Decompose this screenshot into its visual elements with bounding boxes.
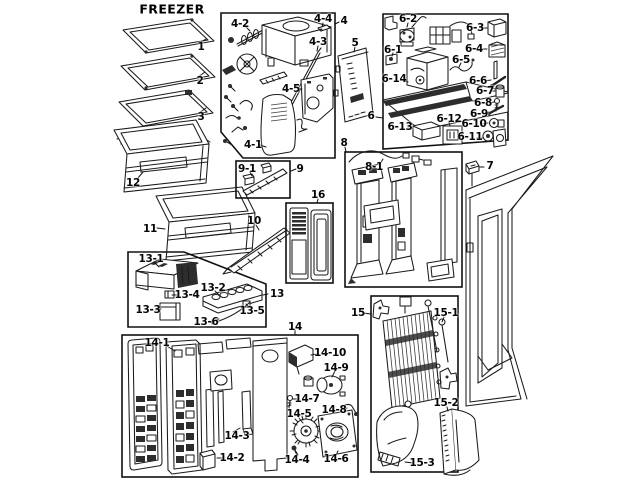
part-label-4-1: 4-1 [244, 139, 262, 151]
part-label-6-11: 6-11 [457, 131, 482, 143]
part-label-15-3: 15-3 [409, 457, 434, 469]
part-label-6-12: 6-12 [436, 113, 461, 125]
part-label-6-3: 6-3 [466, 22, 484, 34]
diagram-stage: FREEZER 123121113-113-413-213-313-513-61… [0, 0, 640, 480]
part-label-6-5: 6-5 [452, 54, 470, 66]
part-label-16: 16 [311, 189, 325, 201]
part-label-14-9: 14-9 [323, 362, 348, 374]
part-label-12: 12 [126, 177, 140, 189]
part-label-8: 8 [340, 137, 347, 149]
part-label-14-7: 14-7 [294, 393, 319, 405]
part-label-6: 6 [367, 110, 374, 122]
part-label-4-3: 4-3 [309, 36, 327, 48]
part-label-9-1: 9-1 [238, 163, 256, 175]
part-label-10: 10 [247, 215, 261, 227]
part-label-6-13: 6-13 [387, 121, 412, 133]
part-label-14-10: 14-10 [314, 347, 346, 359]
part-label-6-10: 6-10 [461, 118, 486, 130]
part-label-5: 5 [351, 37, 358, 49]
part-label-13-4: 13-4 [174, 289, 199, 301]
part-label-6-1: 6-1 [384, 44, 402, 56]
part-label-14: 14 [288, 321, 302, 333]
part-label-4-5: 4-5 [282, 83, 300, 95]
part-label-3: 3 [197, 111, 204, 123]
part-label-14-5: 14-5 [286, 408, 311, 420]
part-label-13-1: 13-1 [138, 253, 163, 265]
part-label-13-6: 13-6 [193, 316, 218, 328]
diagram-art [0, 0, 640, 480]
part-label-13: 13 [270, 288, 284, 300]
door-clip-7 [466, 161, 479, 186]
part-label-14-3: 14-3 [224, 430, 249, 442]
part-label-14-4: 14-4 [284, 454, 309, 466]
part-label-4-2: 4-2 [231, 18, 249, 30]
part-label-8-1: 8-1 [365, 161, 383, 173]
part-label-13-5: 13-5 [239, 305, 264, 317]
part-label-6-7: 6-7 [476, 85, 494, 97]
part-label-7: 7 [486, 160, 493, 172]
part-label-2: 2 [196, 75, 203, 87]
part-label-15-2: 15-2 [433, 397, 458, 409]
part-label-14-8: 14-8 [321, 404, 346, 416]
part-label-9: 9 [296, 163, 303, 175]
evaporator-box-15 [371, 296, 479, 475]
part-label-13-3: 13-3 [135, 304, 160, 316]
grille-box-16 [286, 203, 333, 283]
part-label-6-2: 6-2 [399, 13, 417, 25]
icemaker-box-4 [221, 13, 335, 158]
part-label-14-1: 14-1 [144, 337, 169, 349]
part-label-4: 4 [340, 15, 347, 27]
diagram-title: FREEZER [139, 2, 204, 17]
duct-box-8 [345, 151, 462, 287]
part-label-15-1: 15-1 [433, 307, 458, 319]
part-label-1: 1 [197, 41, 204, 53]
part-label-11: 11 [143, 223, 157, 235]
part-label-15: 15 [351, 307, 365, 319]
part-label-4-4: 4-4 [314, 13, 332, 25]
freezer-door-panel [466, 156, 553, 406]
part-label-6-14: 6-14 [381, 73, 406, 85]
part-label-13-2: 13-2 [200, 282, 225, 294]
part-label-14-2: 14-2 [219, 452, 244, 464]
part-label-14-6: 14-6 [323, 453, 348, 465]
